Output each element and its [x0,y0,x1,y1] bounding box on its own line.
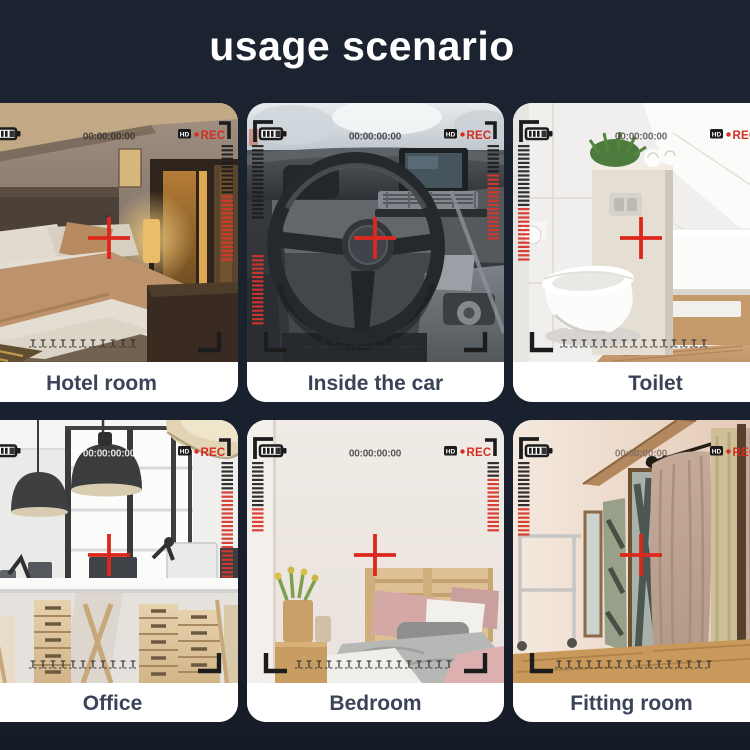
svg-text:REC: REC [733,130,750,142]
svg-text:HD: HD [180,131,190,138]
svg-text:00:00:00:00: 00:00:00:00 [349,449,402,460]
svg-text:HD: HD [712,448,722,455]
svg-text:00:00:00:00: 00:00:00:00 [615,132,668,143]
svg-text:REC: REC [467,447,492,459]
svg-text:00:00:00:00: 00:00:00:00 [83,449,136,460]
svg-text:REC: REC [201,130,226,142]
svg-text:REC: REC [467,130,492,142]
svg-text:00:00:00:00: 00:00:00:00 [615,449,668,460]
svg-text:HD: HD [712,131,722,138]
svg-text:HD: HD [446,448,456,455]
svg-text:00:00:00:00: 00:00:00:00 [83,132,136,143]
svg-text:HD: HD [446,131,456,138]
svg-text:00:00:00:00: 00:00:00:00 [349,132,402,143]
svg-text:REC: REC [733,447,750,459]
svg-text:HD: HD [180,448,190,455]
svg-text:REC: REC [201,447,226,459]
